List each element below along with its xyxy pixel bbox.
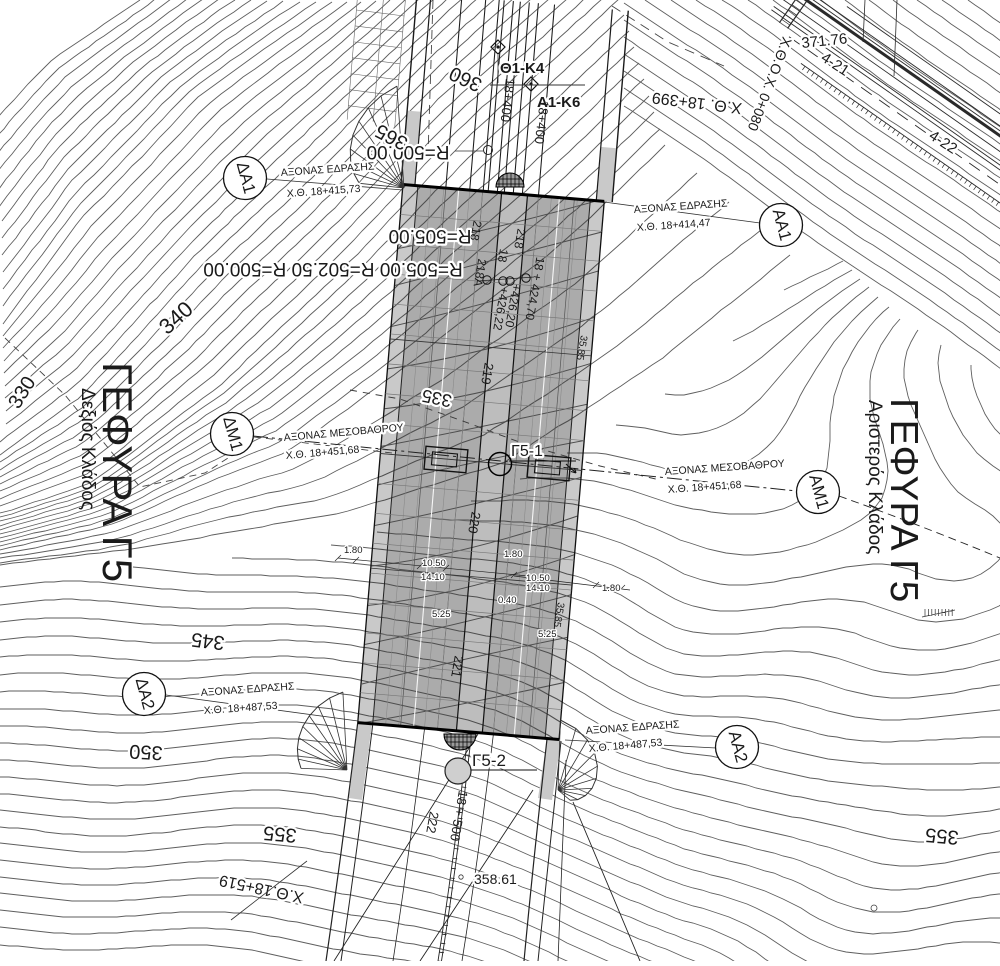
svg-text:18: 18 (495, 248, 511, 264)
svg-text:1.80: 1.80 (602, 583, 621, 594)
svg-text:1.80: 1.80 (344, 545, 363, 556)
svg-text:14.10: 14.10 (526, 583, 550, 594)
svg-text:1.80: 1.80 (504, 549, 523, 560)
svg-text:Δεξιός Κλάδος: Δεξιός Κλάδος (77, 388, 98, 510)
svg-text:ΓΕΦΥΡΑ Γ5: ΓΕΦΥΡΑ Γ5 (94, 362, 141, 582)
svg-text:ΓΕΦΥΡΑ Γ5: ΓΕΦΥΡΑ Γ5 (882, 398, 925, 602)
svg-text:355: 355 (262, 821, 297, 846)
svg-text:R=500.00: R=500.00 (367, 141, 450, 162)
svg-text:358.61: 358.61 (474, 871, 517, 887)
svg-text:5.25: 5.25 (538, 629, 557, 640)
svg-text:355: 355 (924, 823, 959, 848)
svg-text:10.50: 10.50 (422, 558, 446, 569)
svg-text:R=505.00: R=505.00 (389, 225, 472, 246)
svg-text:Γ5-2: Γ5-2 (472, 751, 506, 770)
svg-text:Γ5-1: Γ5-1 (511, 443, 543, 460)
svg-text:R=505.00 R=502.50 R=500.00: R=505.00 R=502.50 R=500.00 (203, 258, 462, 279)
svg-text:345: 345 (190, 628, 226, 654)
svg-text:5.25: 5.25 (432, 609, 451, 620)
svg-text:14.10: 14.10 (421, 572, 445, 583)
svg-text:0.40: 0.40 (498, 595, 517, 606)
svg-text:350: 350 (129, 740, 163, 764)
svg-text:Αριστερός Κλάδος: Αριστερός Κλάδος (864, 400, 885, 554)
svg-text:Θ1-Κ4: Θ1-Κ4 (500, 60, 545, 77)
